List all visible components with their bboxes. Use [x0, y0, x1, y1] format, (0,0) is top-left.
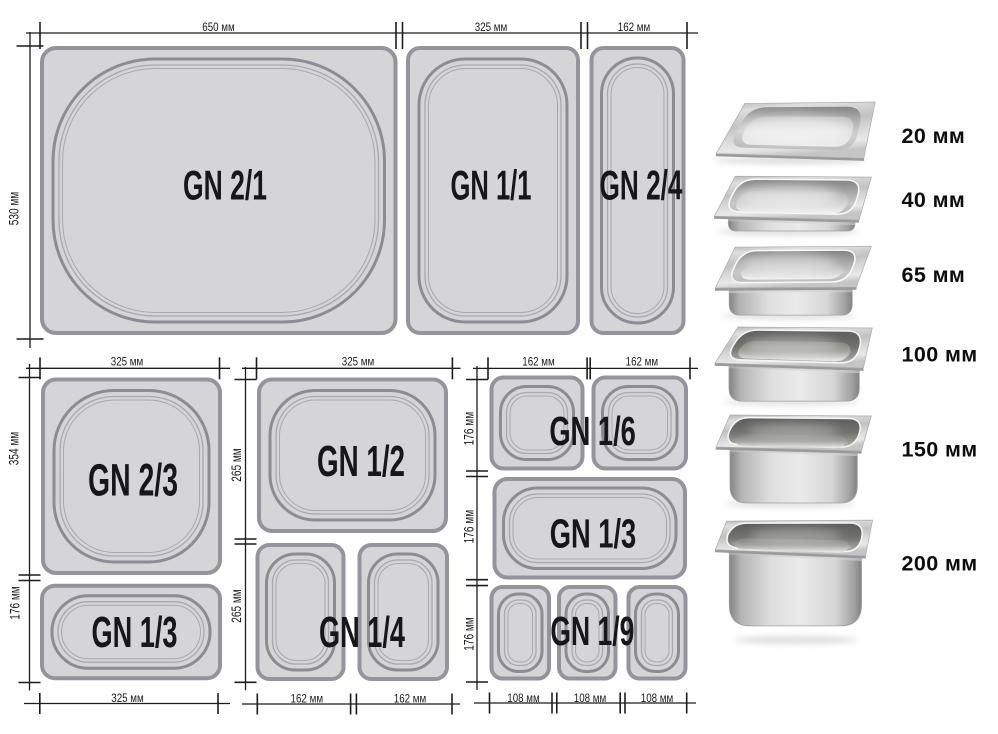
- svg-text:GN 1/3: GN 1/3: [92, 608, 178, 657]
- svg-text:20 мм: 20 мм: [902, 124, 966, 148]
- svg-text:GN 1/2: GN 1/2: [317, 438, 405, 486]
- svg-text:650 мм: 650 мм: [202, 20, 235, 34]
- svg-text:GN 1/1: GN 1/1: [451, 161, 532, 208]
- svg-text:GN 1/9: GN 1/9: [550, 608, 634, 654]
- svg-text:GN 2/4: GN 2/4: [600, 161, 683, 208]
- svg-text:530 мм: 530 мм: [6, 192, 21, 226]
- svg-text:108 мм: 108 мм: [574, 691, 607, 705]
- svg-text:100 мм: 100 мм: [902, 342, 978, 366]
- svg-text:150 мм: 150 мм: [902, 437, 978, 461]
- svg-text:265 мм: 265 мм: [229, 448, 244, 482]
- svg-text:GN 2/3: GN 2/3: [88, 455, 178, 506]
- svg-text:GN 1/3: GN 1/3: [550, 511, 637, 557]
- svg-text:200 мм: 200 мм: [902, 551, 978, 575]
- svg-text:40 мм: 40 мм: [902, 188, 966, 212]
- svg-text:354 мм: 354 мм: [6, 432, 21, 466]
- svg-text:65 мм: 65 мм: [902, 263, 966, 287]
- svg-text:108 мм: 108 мм: [507, 691, 540, 705]
- svg-text:176 мм: 176 мм: [461, 412, 476, 446]
- svg-text:325 мм: 325 мм: [475, 20, 508, 34]
- svg-text:176 мм: 176 мм: [461, 510, 476, 544]
- svg-text:325 мм: 325 мм: [111, 691, 144, 705]
- svg-text:GN 1/4: GN 1/4: [319, 609, 405, 657]
- svg-text:176 мм: 176 мм: [7, 586, 22, 620]
- svg-text:GN 2/1: GN 2/1: [183, 161, 267, 208]
- svg-text:108 мм: 108 мм: [641, 691, 674, 705]
- svg-text:325 мм: 325 мм: [111, 355, 144, 369]
- svg-text:162 мм: 162 мм: [618, 20, 651, 34]
- svg-text:162 мм: 162 мм: [394, 692, 427, 706]
- svg-text:GN 1/6: GN 1/6: [549, 408, 636, 454]
- svg-text:325 мм: 325 мм: [342, 355, 375, 369]
- svg-text:265 мм: 265 мм: [229, 589, 244, 623]
- svg-text:176 мм: 176 мм: [461, 617, 476, 651]
- svg-text:162 мм: 162 мм: [522, 355, 555, 369]
- svg-text:162 мм: 162 мм: [291, 692, 324, 706]
- svg-text:162 мм: 162 мм: [626, 355, 659, 369]
